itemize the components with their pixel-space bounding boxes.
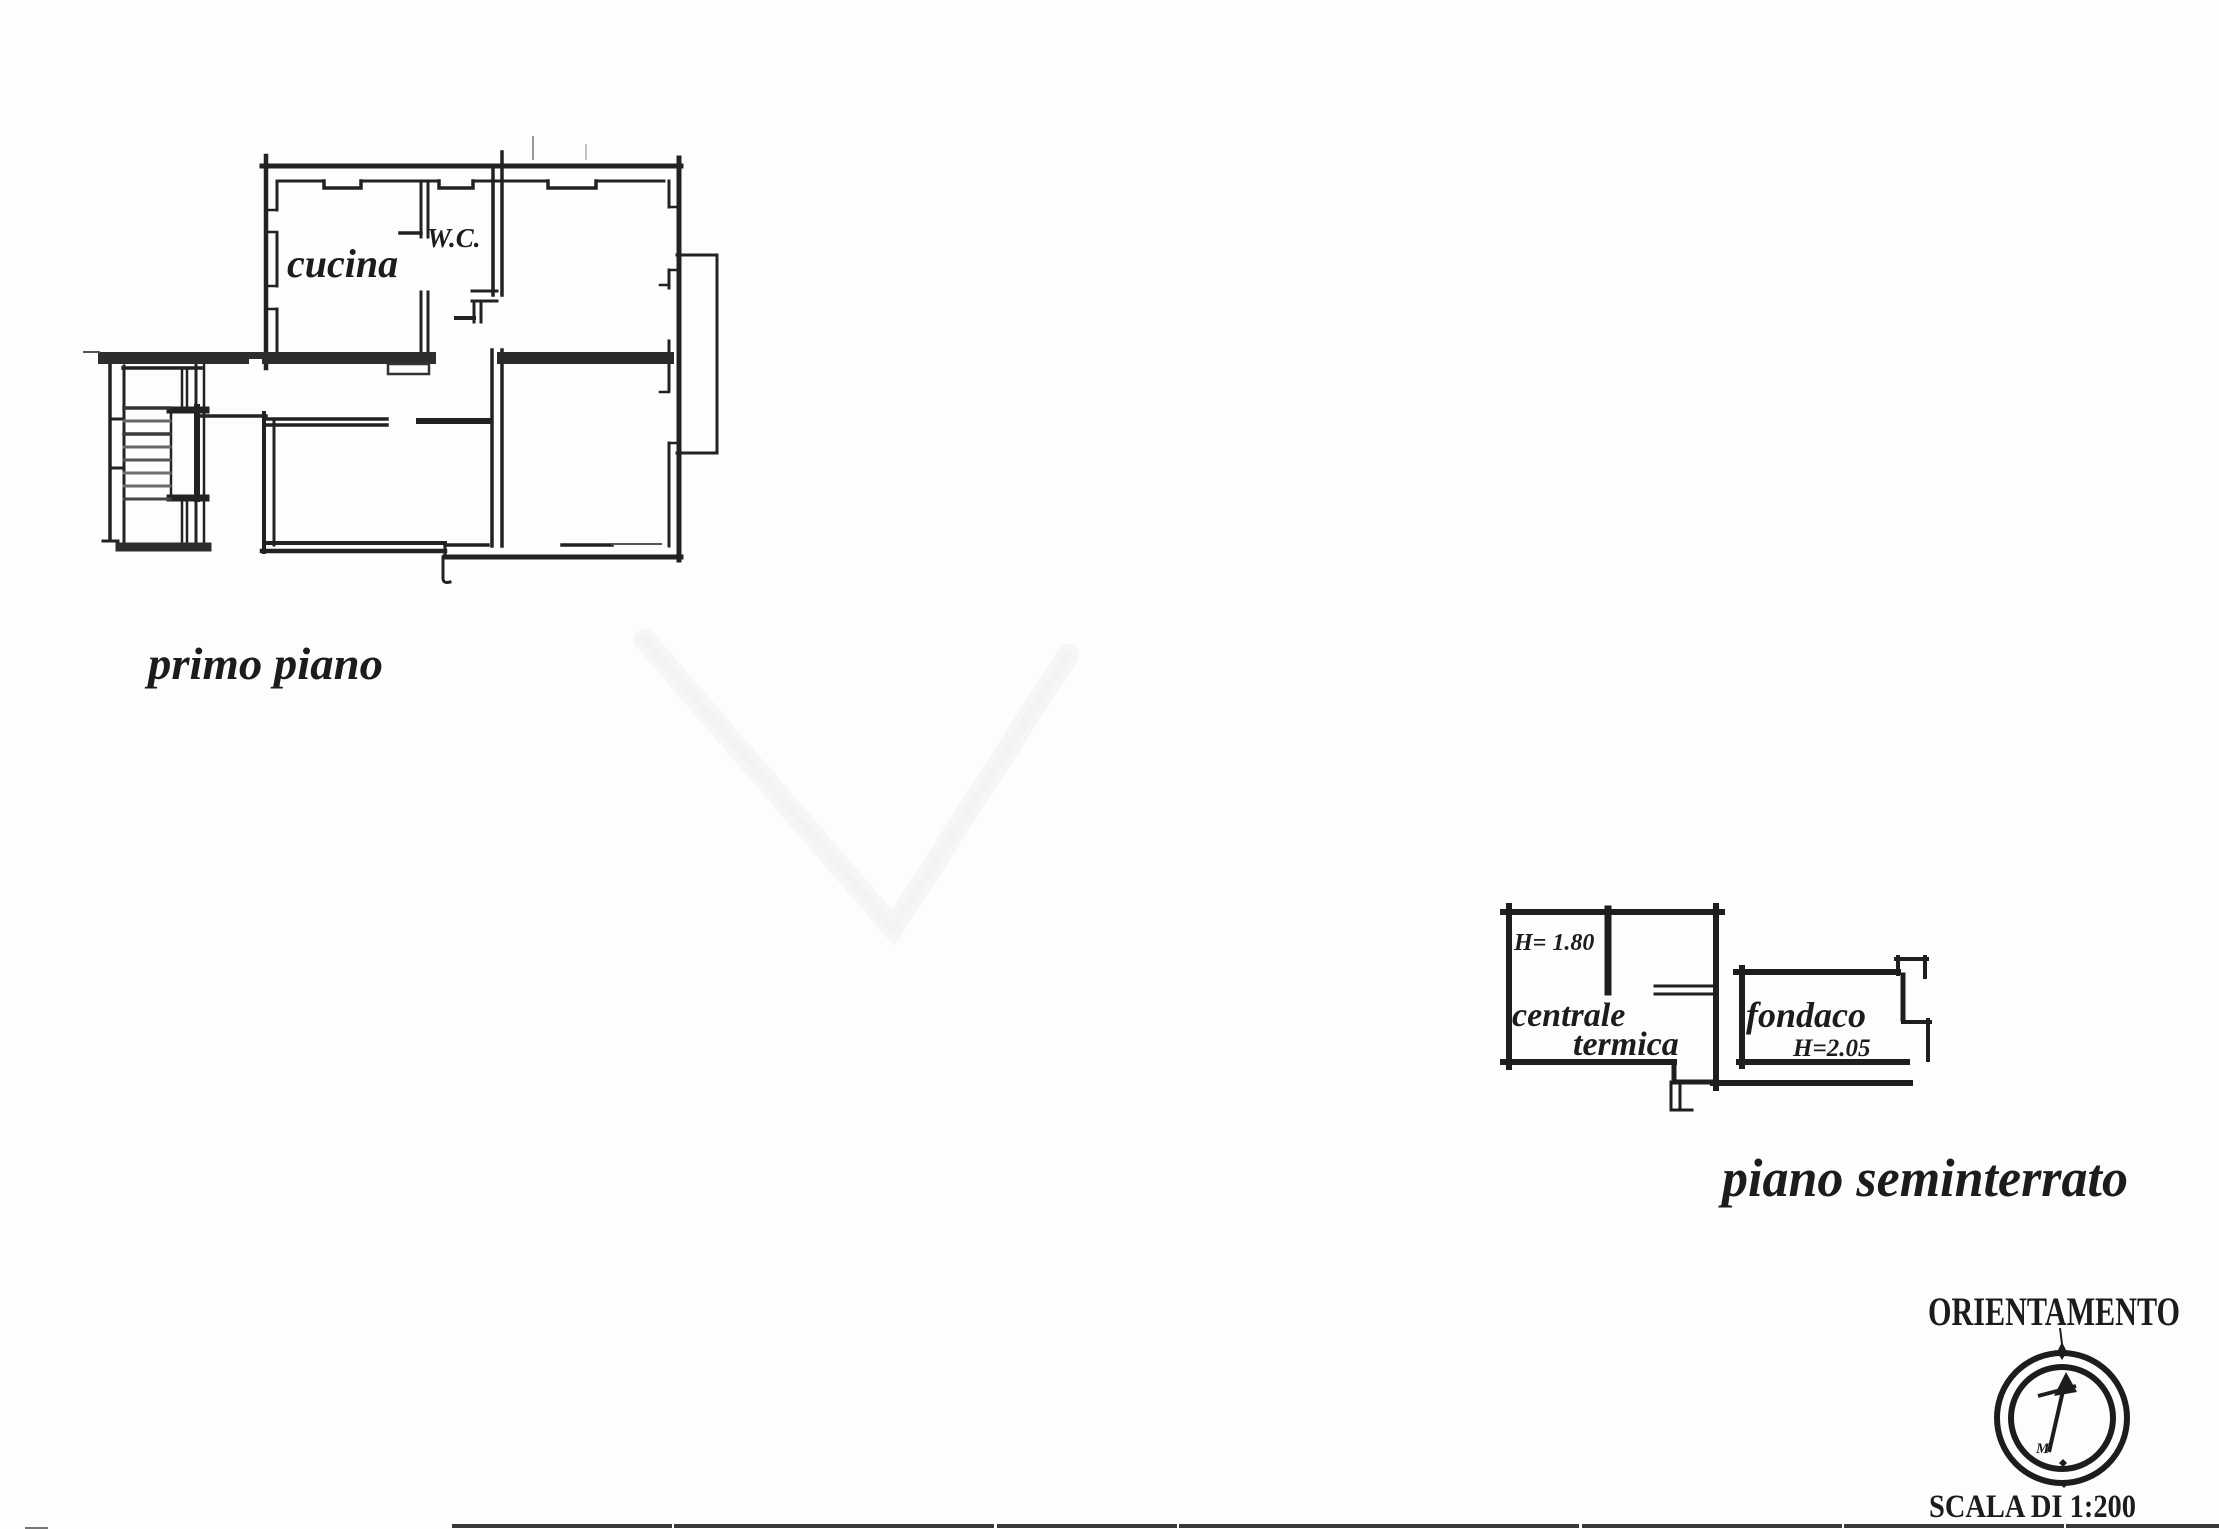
svg-text:termica: termica [1573, 1026, 1679, 1063]
svg-text:SCALA DI 1:200: SCALA DI 1:200 [1929, 1489, 2136, 1525]
svg-text:cucina: cucina [287, 241, 398, 286]
svg-text:primo piano: primo piano [144, 638, 383, 689]
svg-text:W.C.: W.C. [427, 223, 481, 253]
svg-text:ORIENTAMENTO: ORIENTAMENTO [1928, 1289, 2180, 1334]
svg-text:M: M [2035, 1441, 2050, 1457]
svg-text:piano seminterrato: piano seminterrato [1718, 1148, 2128, 1208]
svg-text:H=2.05: H=2.05 [1792, 1035, 1870, 1062]
svg-text:H= 1.80: H= 1.80 [1513, 930, 1594, 956]
svg-text:fondaco: fondaco [1746, 995, 1866, 1035]
